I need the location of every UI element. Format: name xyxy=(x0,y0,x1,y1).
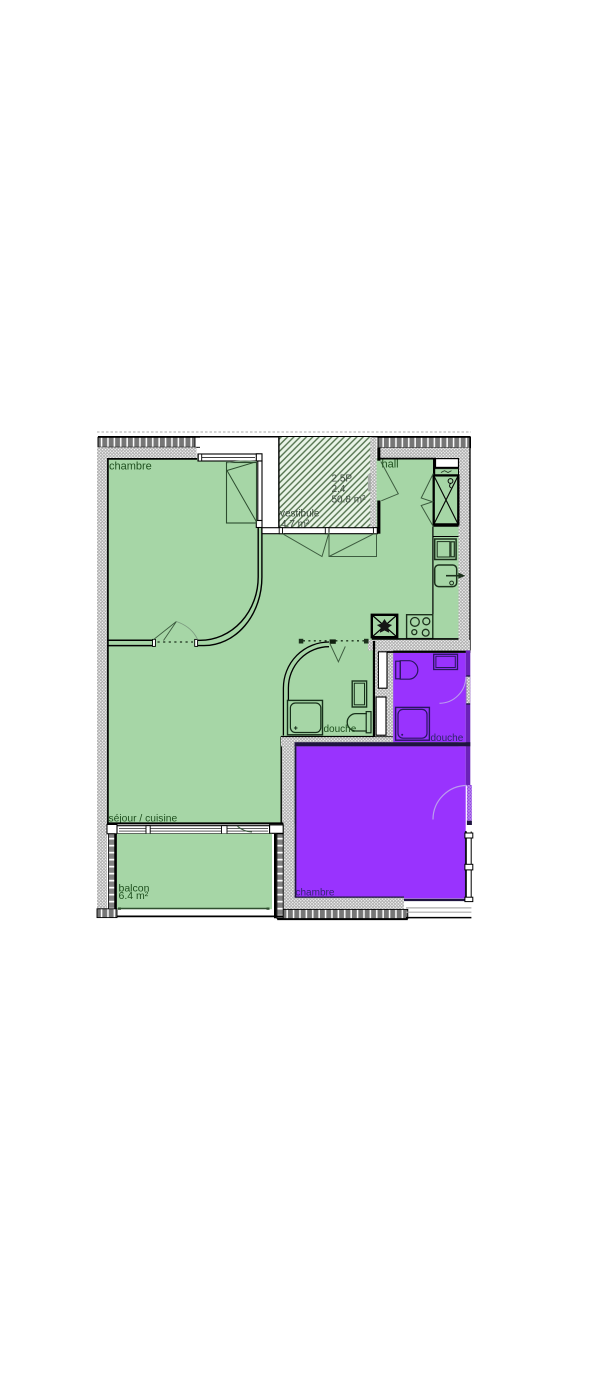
svg-text:6.4 m²: 6.4 m² xyxy=(119,890,149,902)
svg-text:2.5P: 2.5P xyxy=(332,474,353,485)
svg-text:chambre: chambre xyxy=(296,888,335,899)
svg-text:chambre: chambre xyxy=(109,460,152,472)
svg-text:douche: douche xyxy=(324,724,357,735)
svg-text:50.8 m²: 50.8 m² xyxy=(332,495,367,506)
svg-text:2.4: 2.4 xyxy=(332,484,346,495)
svg-text:vestibule: vestibule xyxy=(280,509,320,520)
svg-text:hall: hall xyxy=(382,459,399,471)
